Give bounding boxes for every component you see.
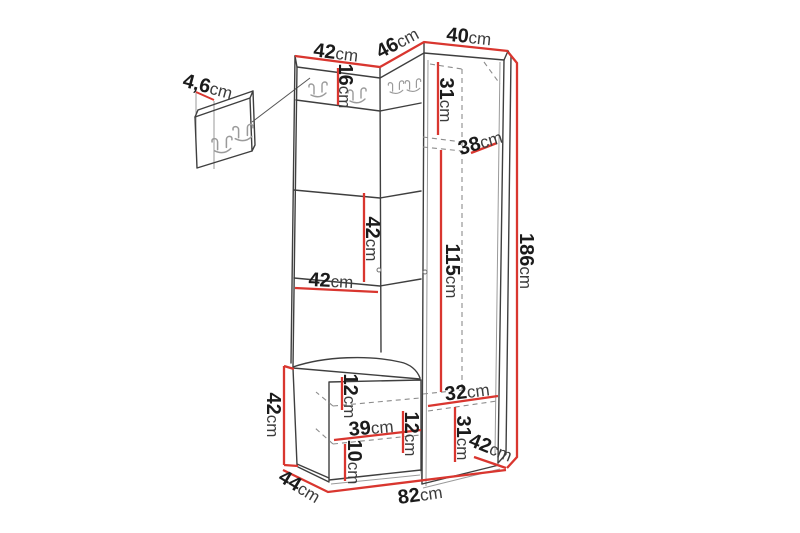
dim-label-wardrobe-interior-height: 115cm: [441, 244, 463, 299]
dim-label-top-width-right: 40cm: [445, 24, 492, 51]
dim-label-total-width: 82cm: [396, 481, 444, 509]
coat-hook-icon: [405, 79, 420, 92]
dim-label-panel-section-height: 42cm: [361, 217, 383, 262]
dim-label-panel-depth: 4,6cm: [181, 70, 235, 104]
dim-label-total-height: 186cm: [515, 233, 537, 289]
dim-label-wardrobe-interior-width: 32cm: [443, 378, 490, 405]
dim-label-wardrobe-depth: 42cm: [466, 429, 516, 466]
dim-label-wardrobe-top-section: 31cm: [435, 78, 457, 123]
wall-hook-panel: [195, 91, 255, 169]
door-knob: [377, 268, 381, 272]
dim-label-bench-top-inset: 12cm: [339, 374, 361, 419]
coat-hook-icon: [212, 136, 232, 152]
dim-label-panel-section-width: 42cm: [308, 269, 354, 293]
door-knob: [423, 270, 427, 274]
coat-hook-icon: [388, 81, 403, 94]
coat-hook-icon: [309, 82, 327, 97]
dim-label-bench-plinth-height: 10cm: [343, 440, 365, 485]
dim-label-wardrobe-upper-depth: 38cm: [456, 126, 505, 160]
coat-hook-icon: [233, 124, 253, 140]
coat-hooks: [309, 79, 421, 103]
dim-label-bench-interior-width: 39cm: [348, 415, 395, 441]
dim-label-bench-height: 42cm: [262, 393, 284, 438]
dim-label-bench-mid-inset: 12cm: [400, 412, 422, 457]
diagram-canvas: 4,6cm 42cm 46cm 40cm 16cm 31cm 38cm 115c…: [0, 0, 800, 533]
furniture-dimension-diagram: 4,6cm 42cm 46cm 40cm 16cm 31cm 38cm 115c…: [0, 0, 800, 533]
dimension-labels: 4,6cm 42cm 46cm 40cm 16cm 31cm 38cm 115c…: [181, 23, 537, 509]
dim-label-hook-strip-height: 16cm: [334, 64, 356, 109]
